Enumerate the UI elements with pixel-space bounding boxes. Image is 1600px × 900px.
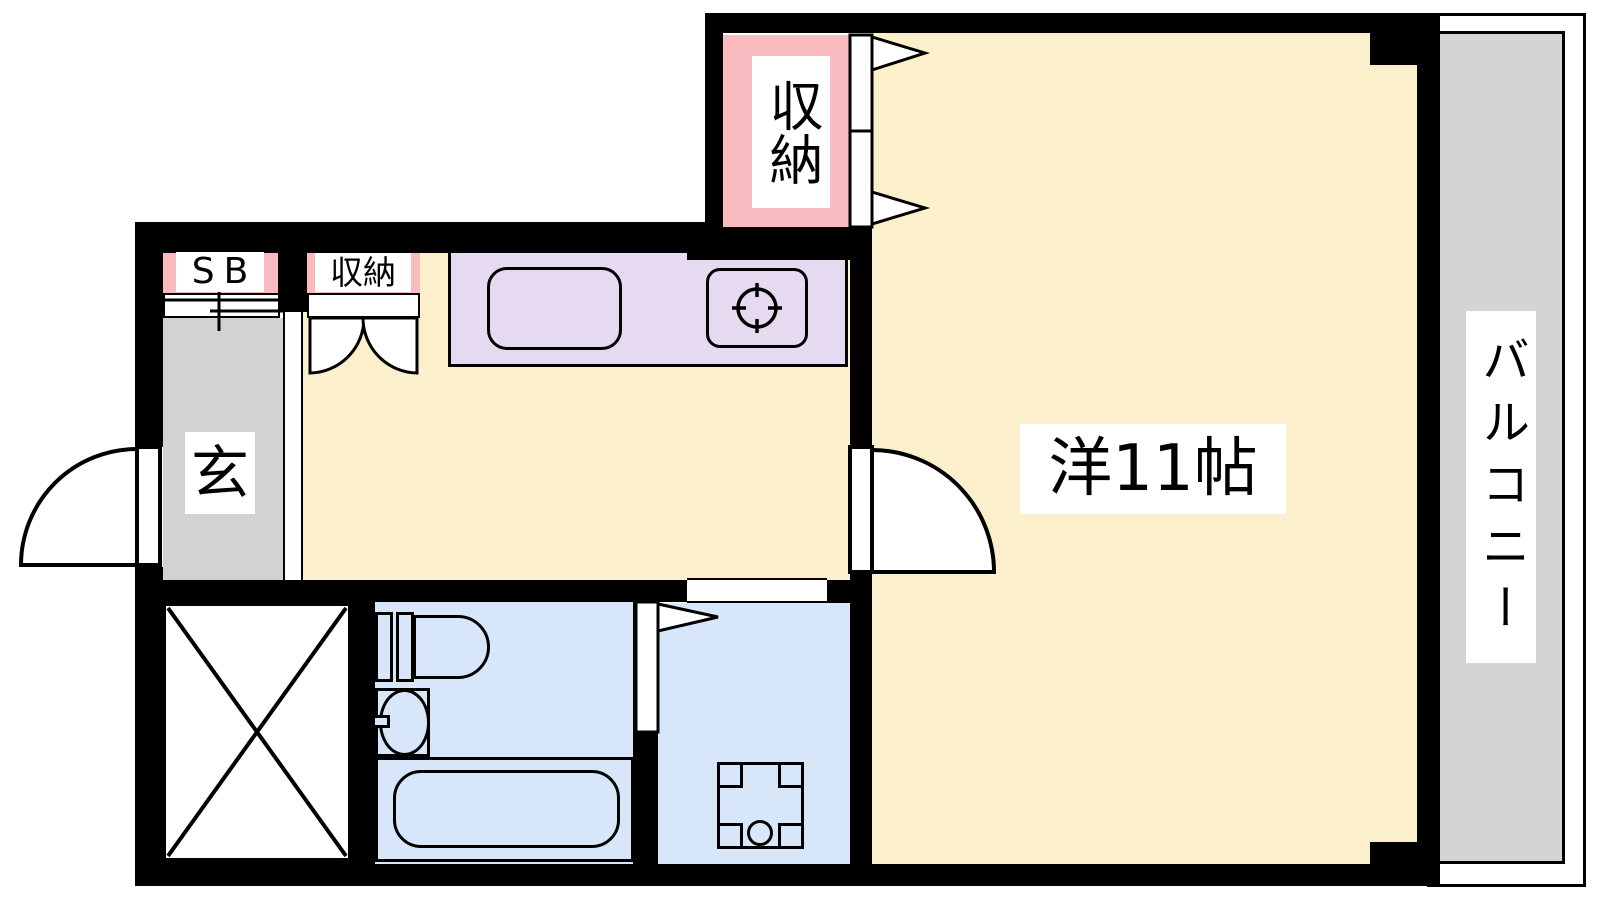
balcony-label: バルコニー <box>1466 311 1536 663</box>
wall-top-kitchen <box>135 222 723 253</box>
wall-bottom <box>135 864 1440 886</box>
bathtub <box>393 770 620 848</box>
floor-plan: 玄 SB 収納 収納 洋11帖 バルコニー <box>0 0 1600 900</box>
shaft-void-box <box>162 602 352 862</box>
pillar-bottom-right <box>1370 842 1417 864</box>
wall-laundry-top <box>827 580 850 603</box>
laundry-doorway-opening <box>687 578 827 603</box>
wall-left-lower <box>135 567 163 886</box>
wall-top-main-room <box>705 13 1440 33</box>
toilet-bowl <box>413 615 490 679</box>
hall-closet-door-band <box>307 293 420 318</box>
wall-shoebox-divider <box>278 248 307 312</box>
stove-top <box>706 268 808 348</box>
wall-bath-laundry <box>633 602 658 864</box>
wall-right <box>1417 13 1440 864</box>
washer-drain <box>747 820 773 846</box>
wall-hall-main-upper <box>850 250 872 447</box>
toilet-tank <box>375 612 393 682</box>
washer-pan-corner <box>717 762 743 788</box>
room-closet-label: 収納 <box>752 56 830 208</box>
washer-pan-corner <box>778 762 804 788</box>
pillar-top-right <box>1370 13 1417 65</box>
wall-bathroom-top <box>345 580 687 602</box>
kitchen-sink <box>487 267 622 350</box>
shoe-box-sliding-door <box>163 293 280 318</box>
wall-main-room-left <box>705 13 723 260</box>
entrance-step-edge <box>283 312 303 580</box>
toilet-seat-back <box>396 612 414 682</box>
wall-left-upper <box>135 222 163 447</box>
washer-pan-corner <box>717 823 743 849</box>
wall-closet-base <box>687 227 872 260</box>
hall-closet-label: 収納 <box>315 253 411 292</box>
entrance-label: 玄 <box>185 432 255 514</box>
main-room-label: 洋11帖 <box>1020 424 1286 514</box>
washer-pan-corner <box>778 823 804 849</box>
wall-hall-main-lower <box>850 572 872 864</box>
shoe-box-label: SB <box>176 252 264 292</box>
front-door-icon <box>21 447 160 565</box>
